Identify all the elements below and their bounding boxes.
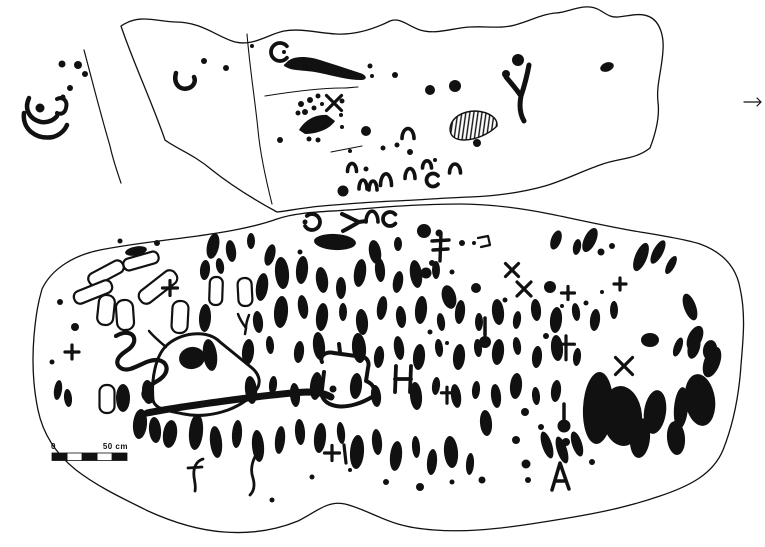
engraved-mark bbox=[289, 383, 301, 408]
engraved-mark bbox=[512, 337, 522, 356]
engraved-mark bbox=[647, 238, 668, 266]
cup-mark bbox=[340, 125, 344, 129]
cup-mark bbox=[502, 70, 510, 78]
cup-mark bbox=[558, 420, 571, 433]
cup-mark bbox=[302, 109, 308, 115]
cup-mark bbox=[522, 460, 531, 469]
cup-mark bbox=[361, 126, 371, 136]
cup-mark bbox=[154, 240, 160, 246]
x-motif bbox=[506, 264, 519, 277]
cup-mark bbox=[364, 167, 369, 172]
a-glyph bbox=[552, 463, 569, 490]
engraved-mark bbox=[443, 435, 460, 468]
engraved-mark bbox=[63, 389, 73, 408]
cup-mark bbox=[71, 323, 79, 331]
engraved-mark bbox=[274, 426, 287, 455]
outlined-mark bbox=[100, 385, 115, 413]
cup-mark bbox=[118, 239, 123, 244]
engraved-mark bbox=[579, 226, 601, 255]
left-fragment-outline bbox=[84, 50, 121, 183]
engraved-mark bbox=[550, 380, 562, 403]
cup-mark bbox=[428, 330, 433, 335]
engraved-mark bbox=[314, 233, 357, 251]
arch-motif bbox=[359, 180, 367, 189]
x-motif bbox=[327, 96, 342, 111]
cup-mark bbox=[348, 149, 352, 153]
cup-mark bbox=[544, 281, 556, 293]
cup-mark bbox=[338, 186, 349, 197]
engraved-mark bbox=[680, 292, 701, 322]
scale-length-label: 50 cm bbox=[103, 442, 128, 451]
cup-mark bbox=[450, 270, 455, 275]
engraved-mark bbox=[431, 377, 441, 396]
cup-mark bbox=[250, 44, 254, 48]
engraved-mark bbox=[265, 336, 275, 355]
edge-mark bbox=[744, 98, 761, 106]
cup-and-ring-hook bbox=[57, 98, 66, 114]
ring-motif bbox=[427, 174, 438, 187]
engraved-mark bbox=[436, 313, 446, 332]
cup-mark bbox=[512, 54, 524, 66]
engraved-mark bbox=[434, 339, 444, 358]
cup-mark bbox=[57, 299, 63, 305]
engraved-mark bbox=[531, 387, 541, 406]
engraved-mark bbox=[371, 429, 383, 456]
cup-mark bbox=[307, 137, 312, 142]
cup-mark bbox=[436, 230, 443, 237]
cup-mark bbox=[471, 283, 481, 293]
engraved-mark bbox=[352, 258, 368, 287]
engraved-mark bbox=[187, 413, 204, 450]
cup-mark bbox=[298, 250, 303, 255]
engraved-mark bbox=[491, 338, 506, 365]
engraved-mark bbox=[201, 338, 219, 372]
arch-motif bbox=[369, 181, 377, 190]
engraved-mark bbox=[471, 381, 481, 400]
scale-bar-segment bbox=[97, 453, 112, 461]
engraved-mark bbox=[204, 232, 221, 260]
engraved-mark bbox=[512, 311, 522, 330]
cup-mark bbox=[479, 336, 491, 348]
elongated-blob bbox=[284, 57, 366, 80]
cross-motif bbox=[325, 446, 340, 461]
cup-mark bbox=[74, 61, 82, 69]
engraved-mark bbox=[254, 272, 270, 301]
cup-mark bbox=[298, 101, 304, 107]
scale-bar-segment bbox=[52, 453, 67, 461]
engraved-mark bbox=[699, 344, 725, 380]
cup-mark bbox=[307, 97, 313, 103]
engraved-mark bbox=[479, 410, 493, 437]
scale-bar-segment bbox=[67, 453, 82, 461]
cup-mark bbox=[425, 85, 435, 95]
engraved-mark bbox=[215, 257, 226, 274]
cup-mark bbox=[282, 50, 286, 54]
cup-mark bbox=[339, 113, 343, 117]
cup-mark bbox=[61, 95, 66, 100]
engraved-mark bbox=[548, 229, 564, 251]
engraved-mark bbox=[373, 346, 385, 369]
engraved-mark bbox=[349, 373, 363, 400]
cup-mark bbox=[277, 137, 283, 143]
engraved-mark bbox=[231, 420, 243, 449]
engraved-mark bbox=[339, 303, 347, 321]
engraved-mark bbox=[273, 296, 289, 329]
cup-mark bbox=[303, 220, 308, 225]
hooked-line bbox=[188, 459, 203, 491]
engraved-mark bbox=[549, 307, 563, 334]
engraved-mark bbox=[177, 345, 206, 371]
double-barred-cross bbox=[432, 233, 449, 261]
engraved-mark bbox=[538, 430, 556, 460]
engraved-mark bbox=[663, 254, 679, 275]
engraved-mark bbox=[355, 309, 369, 336]
arch-motif bbox=[348, 163, 357, 171]
engraved-mark bbox=[314, 266, 330, 293]
cup-mark bbox=[433, 158, 437, 162]
cup-mark bbox=[589, 459, 595, 465]
cup-mark bbox=[370, 74, 374, 78]
hook-motif bbox=[175, 73, 194, 89]
hatched-oval bbox=[450, 111, 497, 140]
arch-motif bbox=[402, 129, 414, 139]
cup-mark bbox=[330, 386, 337, 393]
scale-zero-label: 0 bbox=[51, 442, 56, 451]
engraved-mark bbox=[394, 237, 402, 251]
engraved-mark bbox=[274, 256, 291, 289]
scale-bar-segment bbox=[82, 453, 97, 461]
engraved-mark bbox=[452, 344, 466, 371]
connector-line bbox=[149, 331, 166, 347]
arch-motif bbox=[405, 169, 415, 179]
engraved-mark bbox=[550, 335, 564, 362]
cup-mark bbox=[395, 143, 400, 148]
cup-mark bbox=[560, 304, 564, 308]
engraved-mark bbox=[294, 419, 306, 446]
cup-mark bbox=[383, 479, 389, 485]
cup-mark bbox=[316, 138, 321, 143]
fracture-line bbox=[247, 34, 272, 204]
scale-bar: 0 50 cm bbox=[51, 442, 128, 461]
engraved-mark bbox=[148, 417, 162, 444]
cup-mark bbox=[473, 139, 481, 147]
cup-mark bbox=[538, 424, 544, 430]
cup-mark bbox=[368, 64, 373, 69]
engraved-mark bbox=[391, 270, 405, 293]
engraved-mark bbox=[199, 260, 211, 281]
ring-motif bbox=[383, 212, 395, 226]
cup-mark bbox=[50, 360, 55, 365]
outlined-mark bbox=[115, 299, 134, 330]
engraved-mark bbox=[490, 384, 502, 409]
cup-mark bbox=[416, 483, 424, 491]
engraved-mark bbox=[568, 430, 586, 458]
engraved-mark bbox=[395, 306, 407, 329]
rock-art-figure: 0 50 cm bbox=[0, 0, 765, 547]
engraved-mark bbox=[53, 380, 64, 401]
cup-mark bbox=[270, 498, 275, 503]
engraved-mark bbox=[225, 239, 238, 262]
cup-mark bbox=[407, 149, 413, 155]
engraved-mark bbox=[296, 294, 309, 319]
engraved-mark bbox=[630, 241, 652, 273]
engraved-mark bbox=[198, 304, 211, 333]
arch-motif bbox=[423, 161, 432, 168]
cup-mark bbox=[223, 65, 229, 71]
stroke-mark bbox=[344, 445, 346, 463]
engraved-mark bbox=[610, 301, 618, 319]
cup-mark bbox=[472, 241, 476, 245]
engraved-mark bbox=[572, 348, 582, 367]
cup-mark bbox=[348, 468, 352, 472]
cup-mark bbox=[503, 298, 508, 303]
cross-motif bbox=[562, 287, 575, 300]
engraved-mark bbox=[641, 333, 659, 347]
engraved-mark bbox=[475, 313, 483, 331]
engraved-mark bbox=[392, 335, 405, 360]
cup-mark bbox=[392, 72, 398, 78]
x-motif bbox=[616, 358, 633, 375]
engraved-mark bbox=[251, 430, 266, 463]
engraved-mark bbox=[375, 295, 388, 320]
cup-mark bbox=[381, 146, 386, 151]
engraved-mark bbox=[388, 440, 403, 471]
scale-bar-segment bbox=[112, 453, 127, 461]
wedge-blob bbox=[299, 115, 335, 134]
outlined-mark bbox=[96, 294, 115, 326]
engraved-mark bbox=[509, 373, 523, 400]
cross-motif bbox=[65, 345, 79, 359]
cup-mark bbox=[320, 102, 324, 106]
cup-mark bbox=[316, 94, 321, 99]
engraved-mark bbox=[530, 299, 542, 322]
engraved-mark bbox=[682, 372, 719, 428]
cup-mark bbox=[445, 341, 449, 345]
engraved-mark bbox=[671, 336, 685, 358]
cup-mark bbox=[449, 80, 461, 92]
engraved-mark bbox=[571, 303, 581, 322]
x-motif bbox=[517, 282, 531, 296]
cup-mark bbox=[201, 58, 207, 64]
engraved-mark bbox=[439, 284, 459, 311]
cup-mark bbox=[296, 111, 301, 116]
cup-mark bbox=[429, 260, 435, 266]
engraved-mark bbox=[349, 435, 365, 470]
engraved-mark bbox=[116, 384, 130, 412]
surface-line bbox=[265, 87, 358, 96]
cup-mark bbox=[310, 475, 315, 480]
h-glyph bbox=[395, 366, 411, 392]
cup-mark bbox=[521, 408, 529, 416]
engraved-mark bbox=[449, 383, 462, 408]
engraved-mark bbox=[491, 298, 506, 325]
engraved-mark bbox=[161, 419, 179, 449]
cup-mark bbox=[450, 480, 455, 485]
cross-motif bbox=[614, 278, 626, 290]
cup-mark bbox=[59, 61, 66, 68]
engraved-mark bbox=[295, 256, 309, 285]
cup-mark bbox=[67, 85, 73, 91]
cup-mark bbox=[82, 71, 88, 77]
outlined-mark bbox=[171, 301, 189, 334]
outlined-mark bbox=[209, 277, 223, 305]
cup-mark bbox=[421, 268, 432, 279]
engraved-mark bbox=[262, 243, 277, 267]
engraving-layer bbox=[24, 7, 761, 533]
engraved-mark bbox=[412, 344, 426, 371]
outlined-mark bbox=[237, 278, 252, 307]
cup-mark bbox=[562, 438, 570, 446]
engraved-mark bbox=[336, 277, 346, 299]
engraved-mark bbox=[336, 422, 346, 445]
engraved-mark bbox=[426, 449, 438, 476]
cup-mark bbox=[417, 224, 431, 238]
y-glyph bbox=[238, 314, 249, 334]
cup-mark bbox=[543, 333, 549, 339]
arch-motif bbox=[381, 174, 392, 186]
engraved-mark bbox=[315, 302, 330, 331]
cup-mark bbox=[598, 249, 605, 256]
bracket-glyph bbox=[478, 236, 490, 247]
engraved-mark bbox=[599, 60, 615, 73]
engraved-mark bbox=[531, 346, 543, 369]
arch-motif bbox=[366, 211, 378, 222]
engraved-mark bbox=[572, 238, 583, 255]
engraved-mark bbox=[589, 309, 601, 332]
engraved-mark bbox=[313, 423, 328, 454]
cup-mark bbox=[479, 477, 486, 484]
engraved-mark bbox=[247, 233, 255, 249]
cup-mark bbox=[340, 99, 345, 104]
cup-mark bbox=[312, 106, 317, 111]
arch-motif bbox=[450, 164, 461, 173]
engraved-mark bbox=[293, 341, 305, 364]
y-sideways-glyph bbox=[342, 214, 366, 231]
engraved-mark bbox=[465, 453, 475, 476]
cup-mark bbox=[600, 290, 604, 294]
cup-mark bbox=[584, 301, 589, 306]
surface-line bbox=[331, 146, 362, 152]
engraved-mark bbox=[411, 436, 421, 459]
thick-groove-line bbox=[147, 392, 331, 413]
engraved-mark bbox=[252, 311, 264, 334]
engraved-mark bbox=[208, 425, 223, 458]
cup-mark bbox=[525, 477, 531, 483]
cup-mark bbox=[36, 104, 45, 113]
engraved-mark bbox=[414, 296, 428, 325]
cup-mark bbox=[512, 436, 520, 444]
cup-mark bbox=[459, 240, 465, 246]
figure-canvas: 0 50 cm bbox=[0, 0, 765, 547]
cup-mark bbox=[609, 243, 615, 249]
